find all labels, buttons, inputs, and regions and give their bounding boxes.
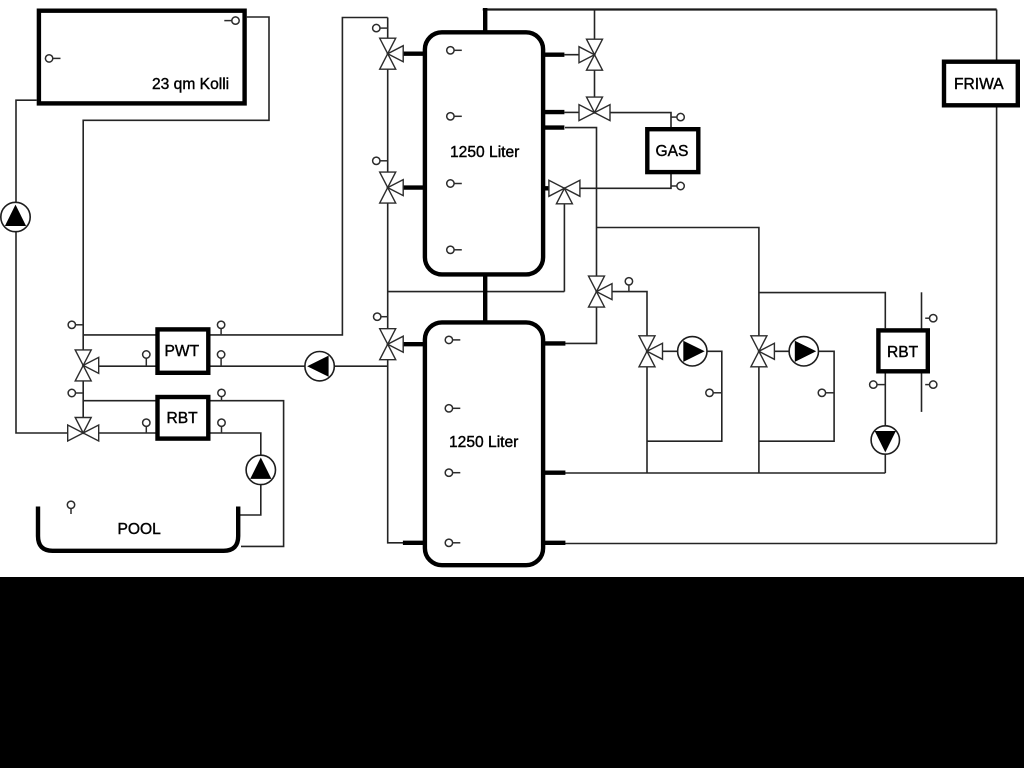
svg-text:POOL: POOL [118,521,162,538]
svg-text:23 qm Kolli: 23 qm Kolli [152,76,229,93]
svg-text:1250 Liter: 1250 Liter [449,434,518,451]
svg-text:GAS: GAS [656,143,689,160]
svg-text:RBT: RBT [887,344,919,361]
svg-text:FRIWA: FRIWA [954,76,1004,93]
svg-text:RBT: RBT [167,410,199,427]
svg-text:1250 Liter: 1250 Liter [450,144,519,161]
svg-text:PWT: PWT [165,343,200,360]
